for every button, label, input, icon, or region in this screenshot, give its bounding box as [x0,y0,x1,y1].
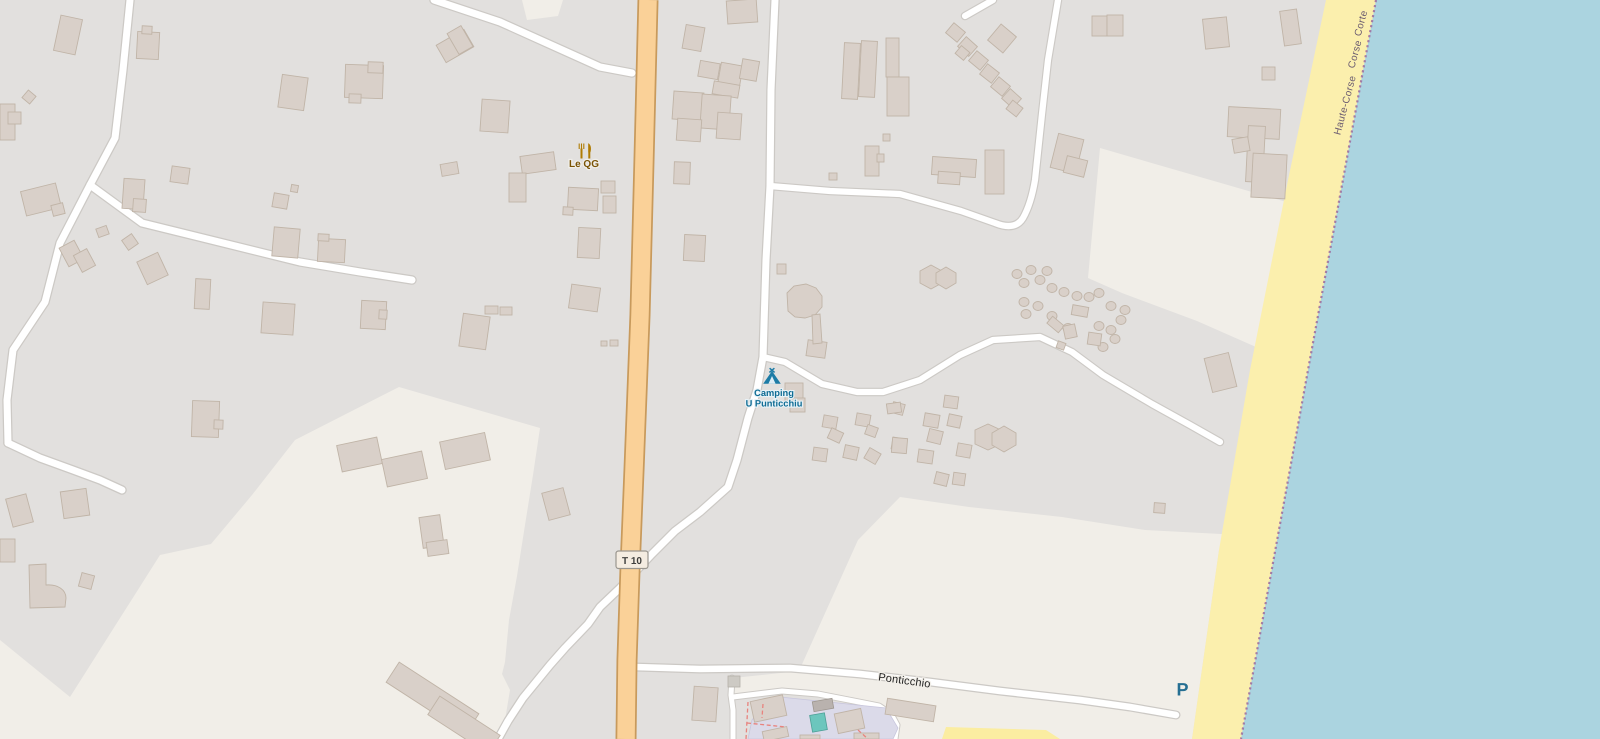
svg-text:T 10: T 10 [622,556,642,567]
svg-text:P: P [1177,680,1189,700]
svg-text:U Punticchiu: U Punticchiu [746,399,803,409]
svg-text:Camping: Camping [754,388,794,398]
svg-text:Le QG: Le QG [569,159,599,170]
